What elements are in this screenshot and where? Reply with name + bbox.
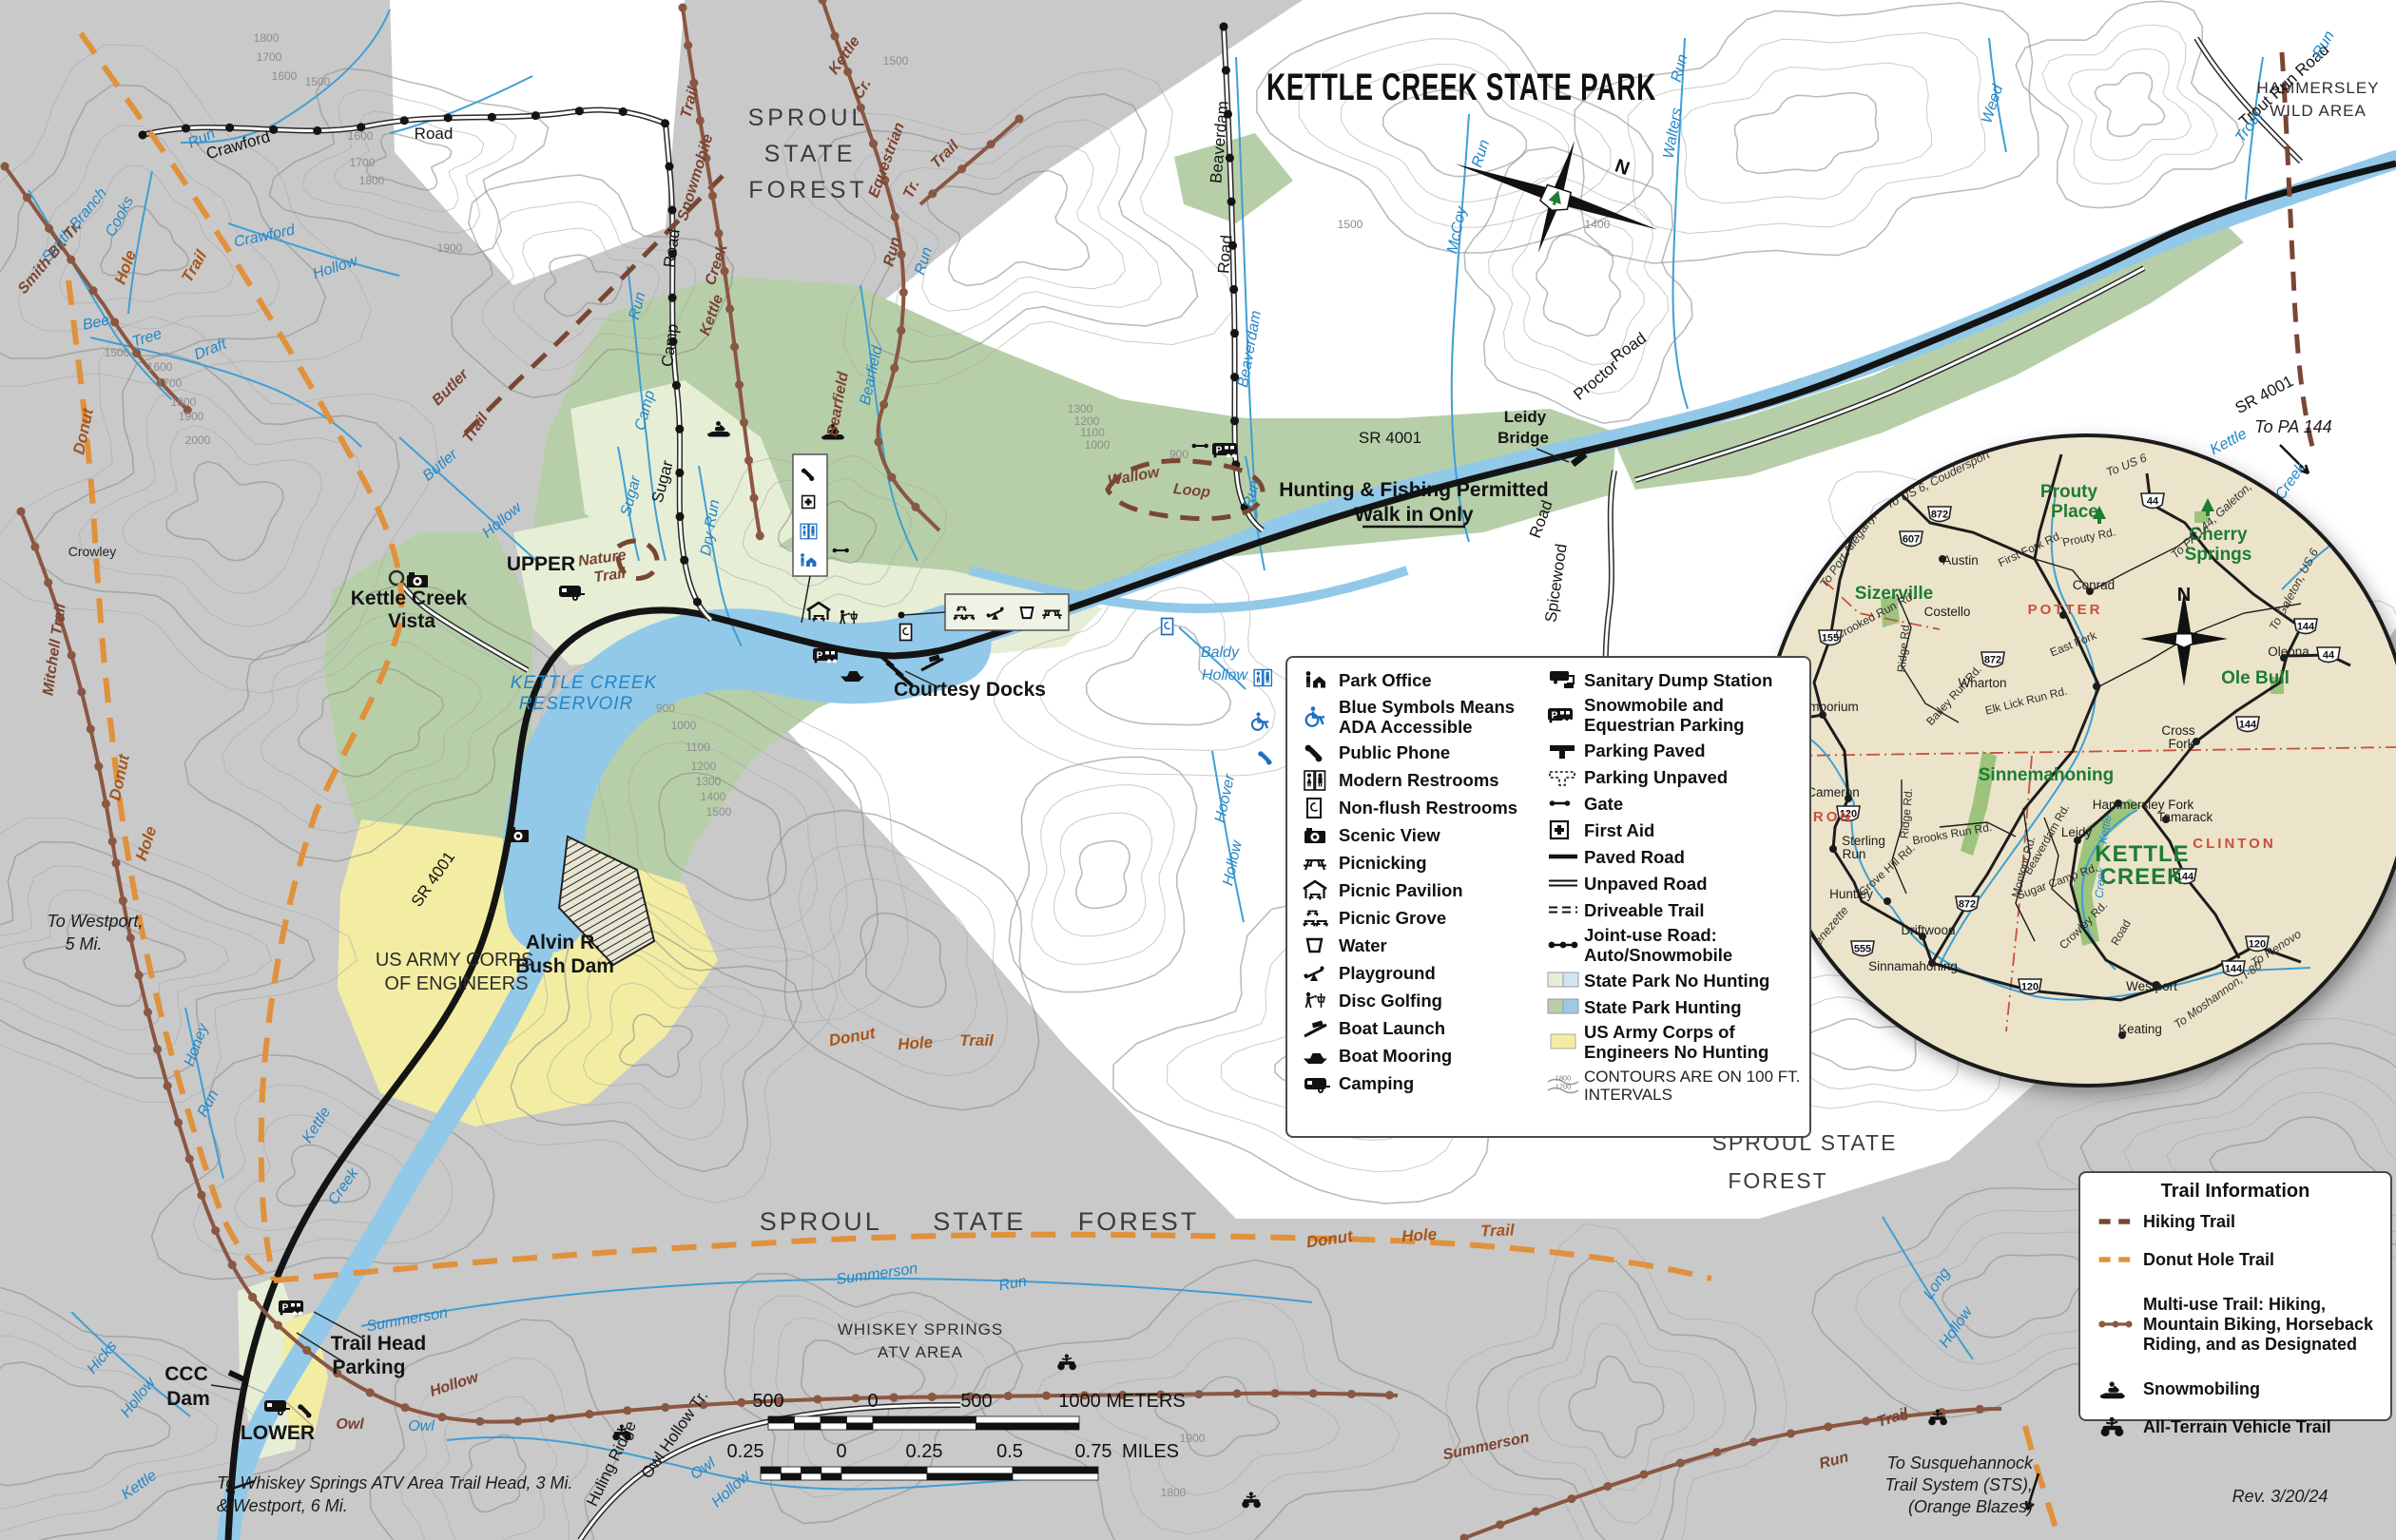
map-label-1400: 1400 (701, 790, 726, 803)
map-label-1300: 1300 (1068, 402, 1093, 415)
map-label-forest: FOREST (748, 177, 867, 203)
svg-text:P: P (1216, 446, 1223, 456)
modern-restrooms-icon (1297, 769, 1339, 792)
inset-label-potter: POTTER (2028, 602, 2103, 618)
legend-item-public-phone: Public Phone (1297, 739, 1542, 766)
scale-label-500: 500 (960, 1391, 992, 1412)
boat-launch-icon (1297, 1017, 1339, 1040)
trail-info-item-label: Hiking Trail (2143, 1212, 2235, 1232)
map-label-ccc: CCC (164, 1363, 208, 1385)
scale-label-0-75: 0.75 (1075, 1441, 1112, 1462)
trail-info-item-donut-hole-trail: Donut Hole Trail (2080, 1241, 2390, 1279)
legend-item-picnic-grove: Picnic Grove (1297, 904, 1542, 932)
map-label-hollow: Hollow (1202, 667, 1248, 683)
svg-text:44: 44 (2323, 650, 2335, 662)
trail-info-item-hiking-trail: Hiking Trail (2080, 1203, 2390, 1241)
map-label-1700: 1700 (257, 50, 282, 64)
map-label-road: Road (415, 125, 454, 143)
map-label-orange-blazes: (Orange Blazes) (1908, 1497, 2033, 1516)
map-label-owl: Owl (336, 1416, 364, 1433)
inset-label-driftwood: Driftwood (1901, 923, 1955, 937)
snowmobile-icon (2088, 1376, 2143, 1401)
legend-item-state-park-hunting: State Park Hunting (1542, 993, 1807, 1020)
map-label-state: STATE (764, 141, 857, 167)
map-label-alvin-r: Alvin R. (526, 932, 600, 953)
parking-unpaved-icon (1542, 765, 1584, 788)
legend-item-label: State Park Hunting (1584, 997, 1742, 1017)
map-label-1500: 1500 (706, 805, 732, 818)
legend-item-blue-symbols-means-ada-accessible: Blue Symbols Means ADA Accessible (1297, 694, 1542, 739)
map-label-1600: 1600 (348, 129, 374, 143)
first-aid-icon (1542, 818, 1584, 841)
legend-panel: Park OfficeBlue Symbols Means ADA Access… (1285, 656, 1811, 1138)
scale-label-0-5: 0.5 (996, 1441, 1023, 1462)
svg-text:44: 44 (2147, 496, 2159, 508)
inset-label-n: N (2177, 585, 2191, 606)
route-shield-872: 872 (1981, 652, 2004, 667)
map-canvas: PPP KETTLE CREEK STATE PARKSPROULSTATEFO… (0, 0, 2396, 1540)
facility-callout-box-upper (793, 454, 827, 576)
map-label-hole: Hole (1401, 1225, 1438, 1246)
legend-item-camping: Camping (1297, 1069, 1542, 1097)
picnic-pavilion-icon (1297, 879, 1339, 902)
legend-item-playground: Playground (1297, 959, 1542, 987)
legend-item-label: Sanitary Dump Station (1584, 670, 1772, 690)
map-label-2000: 2000 (185, 433, 211, 447)
map-label-baldy: Baldy (1201, 645, 1240, 661)
unpaved-road-icon (1542, 872, 1584, 895)
map-label-crowley: Crowley (68, 544, 117, 559)
inset-label-fork: Fork (2169, 737, 2194, 751)
legend-item-label: Picnic Grove (1339, 908, 1446, 928)
legend-item-label: CONTOURS ARE ON 100 FT. INTERVALS (1584, 1068, 1807, 1104)
inset-label-sinnemahoning: Sinnemahoning (1979, 765, 2115, 785)
legend-item-scenic-view: Scenic View (1297, 821, 1542, 849)
route-shield-44: 44 (2317, 647, 2340, 663)
map-label-sproul-state-forest: SPROUL STATE FOREST (760, 1207, 1200, 1236)
svg-text:144: 144 (2239, 720, 2257, 731)
inset-label-cameron: Cameron (1807, 785, 1860, 799)
svg-text:144: 144 (2297, 622, 2315, 633)
map-label-1800: 1800 (359, 174, 385, 187)
inset-label-sinnamahoning: Sinnamahoning (1868, 959, 1958, 973)
non-flush-restrooms-icon (900, 625, 912, 641)
map-label-1200: 1200 (691, 760, 717, 773)
inset-label-leidy: Leidy (2061, 825, 2093, 839)
map-label-walk-in-only: Walk in Only (1354, 504, 1474, 526)
facility-callout-box-docks (945, 594, 1069, 630)
inset-label-clinton: CLINTON (2193, 836, 2275, 852)
map-label-trail-head: Trail Head (331, 1333, 426, 1355)
playground-icon (1297, 962, 1339, 985)
map-label-1300: 1300 (696, 775, 722, 788)
map-label-to-pa-144: To PA 144 (2254, 417, 2331, 436)
legend-item-contours-are-on-100-ft-intervals: 18001700CONTOURS ARE ON 100 FT. INTERVAL… (1542, 1064, 1807, 1107)
map-label-1800: 1800 (1161, 1486, 1187, 1499)
inset-label-run: Run (1843, 847, 1866, 861)
svg-text:872: 872 (1959, 899, 1976, 911)
map-label-parking: Parking (332, 1357, 405, 1378)
legend-item-label: Driveable Trail (1584, 900, 1704, 920)
map-label-1000: 1000 (1085, 438, 1111, 452)
map-label-1900: 1900 (1180, 1432, 1206, 1445)
legend-item-label: Snowmobile and Equestrian Parking (1584, 695, 1807, 735)
legend-item-label: Picnic Pavilion (1339, 880, 1463, 900)
legend-item-label: Park Office (1339, 670, 1432, 690)
phone-icon (1297, 741, 1339, 764)
legend-item-label: US Army Corps of Engineers No Hunting (1584, 1022, 1807, 1062)
picnicking-icon (1297, 852, 1339, 875)
non-flush-restrooms-icon (1297, 797, 1339, 819)
trail-info-item-label: All-Terrain Vehicle Trail (2143, 1417, 2331, 1437)
parking-paved-icon (1542, 739, 1584, 761)
scale-label-miles: MILES (1122, 1441, 1179, 1462)
map-label-trail: Trail (959, 1031, 995, 1049)
hiking-trail-line-icon (2088, 1209, 2143, 1234)
map-label-sproul: SPROUL (748, 105, 869, 131)
trail-info-item-all-terrain-vehicle-trail: All-Terrain Vehicle Trail (2080, 1408, 2390, 1446)
trail-info-item-label: Snowmobiling (2143, 1379, 2260, 1399)
water-icon (1021, 607, 1034, 618)
trail-info-item-multi-use-trail-hiking-mountai: Multi-use Trail: Hiking, Mountain Biking… (2080, 1279, 2390, 1370)
inset-label-cross: Cross (2161, 723, 2195, 738)
map-label-1700: 1700 (350, 156, 376, 169)
legend-item-label: Scenic View (1339, 825, 1440, 845)
map-label-kettle-creek: Kettle Creek (351, 587, 468, 609)
swatch-hunting-icon (1542, 995, 1584, 1018)
legend-item-driveable-trail: Driveable Trail (1542, 896, 1807, 923)
legend-facilities-column: Park OfficeBlue Symbols Means ADA Access… (1297, 666, 1542, 1097)
legend-item-label: Boat Mooring (1339, 1046, 1452, 1066)
map-label-lower: LOWER (241, 1422, 315, 1444)
snowmobile-equestrian-parking-icon: P (1542, 703, 1584, 726)
inset-label-creek: Creek (2093, 866, 2109, 898)
inset-label-costello: Costello (1924, 605, 1971, 619)
boat-mooring-icon (1297, 1045, 1339, 1068)
legend-item-us-army-corps-of-engineers-no-hunting: US Army Corps of Engineers No Hunting (1542, 1020, 1807, 1064)
map-label-to-susquehannock: To Susquehannock (1887, 1453, 2034, 1473)
legend-item-picnic-pavilion: Picnic Pavilion (1297, 876, 1542, 904)
legend-item-label: Blue Symbols Means ADA Accessible (1339, 697, 1542, 737)
legend-item-label: Paved Road (1584, 847, 1685, 867)
park-map-stage: PPP KETTLE CREEK STATE PARKSPROULSTATEFO… (0, 0, 2396, 1540)
map-label-atv-area: ATV AREA (878, 1343, 963, 1361)
map-label-kettle-creek: KETTLE CREEK (511, 673, 658, 693)
legend-item-boat-mooring: Boat Mooring (1297, 1042, 1542, 1069)
inset-label-westport: Westport (2126, 979, 2177, 993)
map-label-sr-4001: SR 4001 (1359, 429, 1421, 447)
map-label-1800: 1800 (171, 395, 197, 409)
legend-item-disc-golfing: Disc Golfing (1297, 987, 1542, 1014)
legend-item-state-park-no-hunting: State Park No Hunting (1542, 967, 1807, 993)
svg-text:1700: 1700 (1555, 1083, 1572, 1091)
map-label-rev-3-20-24: Rev. 3/20/24 (2232, 1487, 2328, 1506)
inset-label-tamarack: Tamarack (2157, 810, 2213, 824)
legend-item-label: Unpaved Road (1584, 874, 1708, 894)
scale-label-1000-meters: 1000 METERS (1058, 1391, 1185, 1412)
legend-features-column: Sanitary Dump StationPSnowmobile and Equ… (1542, 666, 1807, 1107)
inset-label-prouty: Prouty (2040, 482, 2098, 502)
map-label-forest: FOREST (1728, 1168, 1827, 1193)
map-label-1100: 1100 (1080, 426, 1105, 439)
route-shield-144: 144 (2236, 717, 2259, 732)
inset-label-oleona: Oleona (2268, 645, 2309, 659)
map-label-1800: 1800 (254, 31, 280, 45)
route-shield-44: 44 (2141, 493, 2164, 509)
svg-text:P: P (1552, 711, 1558, 722)
legend-item-gate: Gate (1542, 790, 1807, 817)
gate-icon (1542, 792, 1584, 815)
water-icon (1297, 934, 1339, 957)
inset-label-creek: CREEK (2099, 864, 2184, 890)
swatch-no-hunting-icon (1542, 969, 1584, 991)
route-shield-872: 872 (1928, 507, 1951, 522)
map-label-dam: Dam (166, 1388, 210, 1410)
map-label-road: Road (1214, 234, 1235, 274)
legend-item-modern-restrooms: Modern Restrooms (1297, 766, 1542, 794)
joint-use-road-icon (1542, 934, 1584, 956)
map-label-vista: Vista (388, 610, 435, 632)
first-aid-icon (802, 496, 815, 509)
route-shield-607: 607 (1900, 531, 1923, 547)
map-label-900: 900 (1169, 448, 1188, 461)
svg-text:P: P (817, 651, 823, 662)
inset-label-austin: Austin (1942, 553, 1979, 568)
scenic-view-icon (1297, 824, 1339, 847)
legend-item-picnicking: Picnicking (1297, 849, 1542, 876)
legend-item-unpaved-road: Unpaved Road (1542, 870, 1807, 896)
svg-text:872: 872 (1984, 655, 2001, 666)
legend-item-label: Disc Golfing (1339, 991, 1442, 1011)
trail-information-title: Trail Information (2080, 1181, 2390, 1203)
legend-item-label: Gate (1584, 794, 1623, 814)
map-label-wild-area: WILD AREA (2270, 102, 2367, 120)
map-label-to-westport: To Westport, (47, 912, 143, 931)
legend-item-snowmobile-and-equestrian-parking: PSnowmobile and Equestrian Parking (1542, 693, 1807, 737)
inset-label-springs: Springs (2185, 545, 2252, 565)
trail-information-panel: Trail Information Hiking TrailDonut Hole… (2078, 1171, 2392, 1421)
map-label-1000: 1000 (671, 719, 697, 732)
modern-restrooms-icon (1254, 670, 1271, 686)
legend-item-label: Non-flush Restrooms (1339, 798, 1517, 818)
trail-information-rows: Hiking TrailDonut Hole TrailMulti-use Tr… (2080, 1203, 2390, 1446)
legend-item-joint-use-road-auto-snowmobile: Joint-use Road: Auto/Snowmobile (1542, 923, 1807, 967)
route-shield-144: 144 (2294, 619, 2317, 634)
inset-label-keating: Keating (2118, 1022, 2162, 1036)
map-label-westport-6-mi: & Westport, 6 Mi. (217, 1496, 348, 1515)
legend-item-boat-launch: Boat Launch (1297, 1014, 1542, 1042)
sanitary-dump-icon (1542, 668, 1584, 691)
map-label-1500: 1500 (105, 346, 130, 359)
svg-text:1800: 1800 (1555, 1074, 1572, 1083)
map-label-bridge: Bridge (1497, 429, 1549, 447)
map-label-1500: 1500 (883, 54, 909, 67)
legend-item-first-aid: First Aid (1542, 817, 1807, 843)
route-shield-120: 120 (2019, 979, 2041, 994)
scale-label-0: 0 (867, 1391, 878, 1412)
legend-item-paved-road: Paved Road (1542, 843, 1807, 870)
legend-item-label: Water (1339, 935, 1387, 955)
legend-item-park-office: Park Office (1297, 666, 1542, 694)
legend-item-label: Boat Launch (1339, 1018, 1445, 1038)
trail-info-item-label: Donut Hole Trail (2143, 1250, 2274, 1270)
inset-label-sterling: Sterling (1842, 834, 1885, 848)
map-label-1600: 1600 (147, 360, 173, 374)
svg-text:120: 120 (2021, 982, 2039, 993)
map-label-1600: 1600 (272, 69, 298, 83)
trail-info-item-snowmobiling: Snowmobiling (2080, 1370, 2390, 1408)
trail-info-item-label: Multi-use Trail: Hiking, Mountain Biking… (2143, 1295, 2383, 1355)
inset-label-conrad: Conrad (2073, 578, 2115, 592)
legend-item-parking-unpaved: Parking Unpaved (1542, 763, 1807, 790)
map-label-1400: 1400 (1585, 218, 1611, 231)
legend-item-label: First Aid (1584, 820, 1654, 840)
route-shield-872: 872 (1956, 896, 1979, 912)
legend-item-parking-paved: Parking Paved (1542, 737, 1807, 763)
map-label-whiskey-springs: WHISKEY SPRINGS (838, 1320, 1003, 1338)
map-label-us-army-corps: US ARMY CORPS (376, 950, 533, 971)
map-label-leidy: Leidy (1504, 408, 1547, 426)
map-label-1700: 1700 (157, 376, 183, 390)
inset-label-ole-bull: Ole Bull (2221, 668, 2290, 688)
disc-golfing-icon (1297, 990, 1339, 1012)
map-label-5-mi: 5 Mi. (65, 934, 102, 953)
map-label-kettle-creek-state-park: KETTLE CREEK STATE PARK (1266, 67, 1656, 108)
scale-label-0-25: 0.25 (906, 1441, 943, 1462)
map-label-owl: Owl (408, 1418, 435, 1434)
map-label-1100: 1100 (686, 741, 710, 754)
inset-label-kettle: KETTLE (2095, 841, 2189, 867)
svg-text:872: 872 (1931, 510, 1948, 521)
map-label-trail-system-sts: Trail System (STS), (1884, 1475, 2033, 1494)
svg-text:607: 607 (1903, 534, 1920, 546)
map-label-to-whiskey-springs-atv-area-trail-head-3-mi: To Whiskey Springs ATV Area Trail Head, … (217, 1473, 572, 1492)
paved-road-icon (1542, 845, 1584, 868)
inset-label-place: Place (2051, 502, 2098, 522)
modern-restrooms-icon (801, 524, 817, 539)
svg-text:P: P (282, 1303, 289, 1314)
contour-sample-icon: 18001700 (1542, 1074, 1584, 1097)
legend-item-label: Joint-use Road: Auto/Snowmobile (1584, 925, 1807, 965)
atv-icon (2088, 1415, 2143, 1439)
scale-label-0: 0 (836, 1441, 846, 1462)
legend-item-label: Parking Unpaved (1584, 767, 1728, 787)
map-label-hunting-fishing-permitted: Hunting & Fishing Permitted (1279, 479, 1549, 501)
map-label-reservoir: RESERVOIR (519, 694, 634, 714)
legend-item-label: Camping (1339, 1073, 1414, 1093)
legend-item-sanitary-dump-station: Sanitary Dump Station (1542, 666, 1807, 693)
scale-label-0-25: 0.25 (727, 1441, 764, 1462)
legend-item-label: Picnicking (1339, 853, 1427, 873)
map-label-1900: 1900 (437, 241, 463, 255)
map-label-900: 900 (656, 702, 675, 715)
map-label-1900: 1900 (179, 410, 204, 423)
legend-item-non-flush-restrooms: Non-flush Restrooms (1297, 794, 1542, 821)
legend-item-label: Playground (1339, 963, 1436, 983)
scale-label-500: 500 (752, 1391, 783, 1412)
donut-hole-line-icon (2088, 1247, 2143, 1272)
legend-item-label: Parking Paved (1584, 741, 1706, 760)
legend-item-water: Water (1297, 932, 1542, 959)
legend-item-label: Modern Restrooms (1339, 770, 1499, 790)
map-label-1500: 1500 (1338, 218, 1363, 231)
wheelchair-icon (1297, 705, 1339, 728)
map-label-trail: Trail (1480, 1221, 1517, 1240)
non-flush-restrooms-icon (1162, 619, 1173, 635)
map-label-of-engineers: OF ENGINEERS (384, 973, 528, 994)
map-label-hole: Hole (898, 1033, 934, 1054)
legend-item-label: Public Phone (1339, 742, 1450, 762)
park-office-icon (1297, 669, 1339, 692)
camping-icon (1297, 1072, 1339, 1095)
multi-use-line-icon (2088, 1312, 2143, 1337)
map-label-1500: 1500 (305, 75, 331, 88)
route-shield-555: 555 (1851, 941, 1874, 956)
map-label-courtesy-docks: Courtesy Docks (894, 679, 1046, 701)
driveable-trail-icon (1542, 898, 1584, 921)
picnic-grove-icon (1297, 907, 1339, 930)
map-label-upper: UPPER (507, 553, 575, 575)
legend-item-label: State Park No Hunting (1584, 971, 1769, 991)
swatch-usace-icon (1542, 1030, 1584, 1053)
svg-text:555: 555 (1854, 944, 1871, 955)
